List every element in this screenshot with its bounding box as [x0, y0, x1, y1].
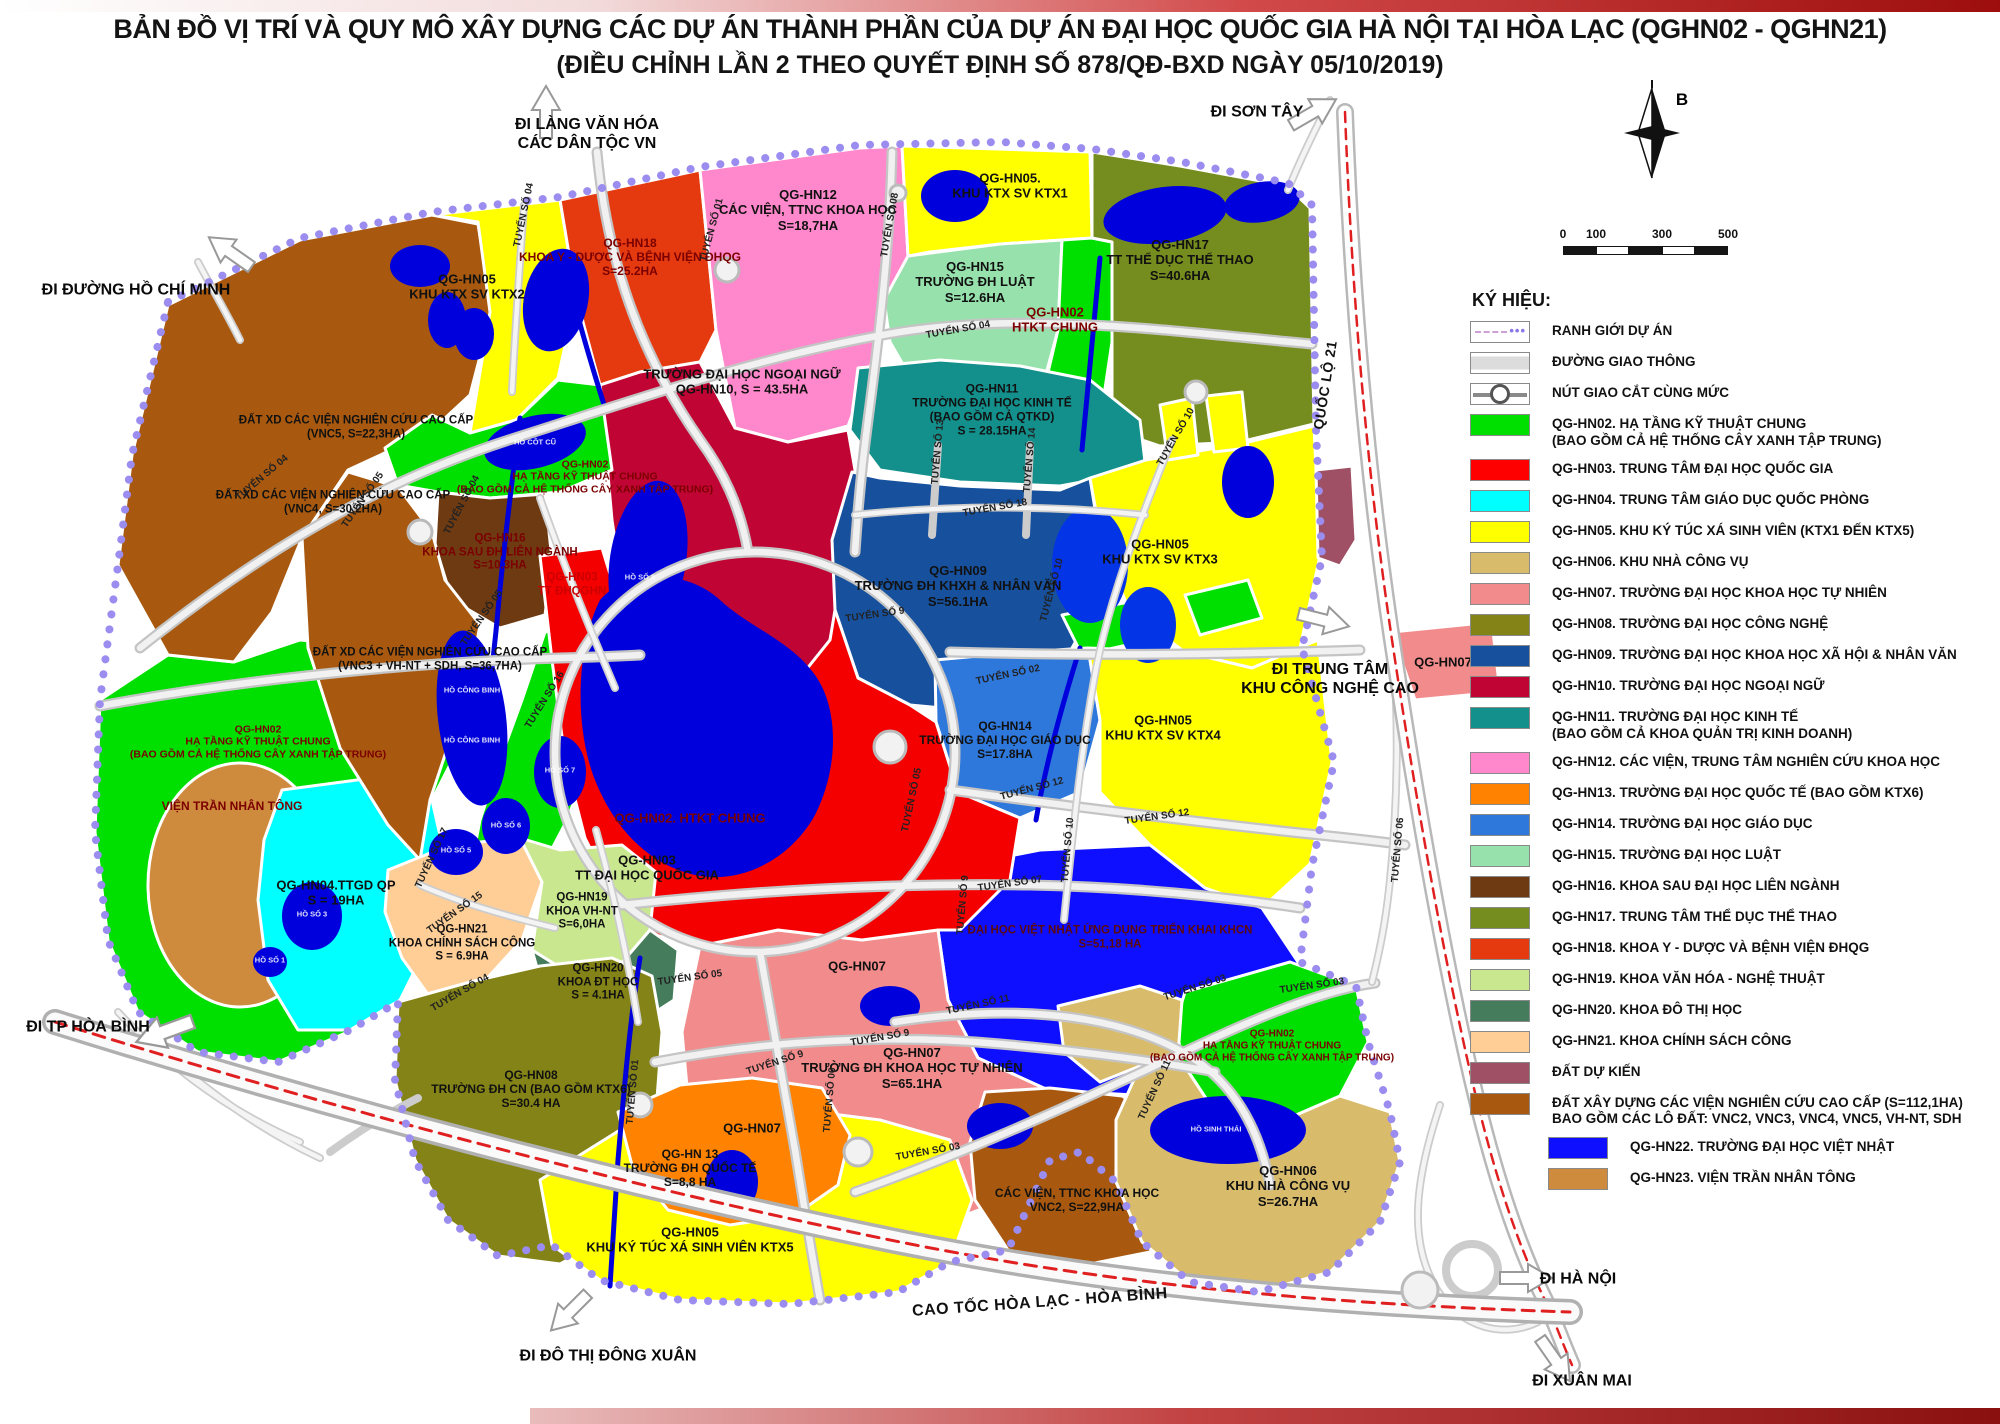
legend-item-label: QG-HN20. KHOA ĐÔ THỊ HỌC: [1552, 1000, 1742, 1019]
scale-bar: 0100300500: [1555, 228, 1755, 262]
zone-label: QG-HN03TT ĐHQGHN: [538, 571, 606, 598]
legend-symbol: [1470, 383, 1530, 405]
zone-label: TRƯỜNG ĐẠI HỌC NGOẠI NGỮQG-HN10, S = 43.…: [643, 367, 840, 398]
lake-label: HỒ SỐ 1: [255, 956, 285, 965]
zone-label: CÁC VIỆN, TTNC KHOA HỌCVNC2, S=22,9HA: [995, 1186, 1159, 1214]
scale-segment: [1563, 246, 1596, 255]
lake-label: HỒ SỐ 7: [545, 766, 575, 775]
direction-label: ĐI ĐÔ THỊ ĐÔNG XUÂN: [520, 1346, 697, 1365]
lake-label: HỒ SỐ 5: [441, 846, 471, 855]
legend-symbol: [1470, 459, 1530, 481]
legend-title: KÝ HIỆU:: [1472, 290, 1995, 311]
lake-label: HỒ SỐ 3: [297, 910, 327, 919]
zone-label: ĐẤT XD CÁC VIỆN NGHIÊN CỨU CAO CẤP(VNC3 …: [313, 646, 547, 673]
map-canvas: QG-HN05KHU KTX SV KTX2QG-HN18KHOA Y - DƯ…: [0, 0, 2000, 1424]
legend-item-label: QG-HN21. KHOA CHÍNH SÁCH CÔNG: [1552, 1031, 1792, 1050]
legend-item: QG-HN20. KHOA ĐÔ THỊ HỌC: [1470, 1000, 1995, 1022]
zone-label: QG-HN19KHOA VH-NTS=6,0HA: [546, 892, 618, 933]
compass-letter: B: [1676, 90, 1688, 110]
scale-segment: [1596, 246, 1629, 255]
scale-tick: 300: [1652, 227, 1672, 241]
legend-symbol: [1470, 1093, 1530, 1115]
zone-label: QG-HN12CÁC VIỆN, TTNC KHOA HỌCS=18,7HA: [719, 187, 897, 233]
legend-symbol: [1470, 907, 1530, 929]
legend-item: QG-HN23. VIỆN TRẦN NHÂN TÔNG: [1548, 1168, 1995, 1190]
scale-segment: [1629, 246, 1662, 255]
legend-item: QG-HN18. KHOA Y - DƯỢC VÀ BỆNH VIỆN ĐHQG: [1470, 938, 1995, 960]
legend-item: QG-HN07. TRƯỜNG ĐẠI HỌC KHOA HỌC TỰ NHIÊ…: [1470, 583, 1995, 605]
legend-item: QG-HN08. TRƯỜNG ĐẠI HỌC CÔNG NGHỆ: [1470, 614, 1995, 636]
legend-item: QG-HN14. TRƯỜNG ĐẠI HỌC GIÁO DỤC: [1470, 814, 1995, 836]
legend-symbol: [1470, 321, 1530, 343]
legend-item-label: QG-HN07. TRƯỜNG ĐẠI HỌC KHOA HỌC TỰ NHIÊ…: [1552, 583, 1887, 602]
legend-symbol: [1470, 845, 1530, 867]
legend-item-label: NÚT GIAO CẮT CÙNG MỨC: [1552, 383, 1729, 402]
legend-item: QG-HN13. TRƯỜNG ĐẠI HỌC QUỐC TẾ (BAO GỒM…: [1470, 783, 1995, 805]
scale-tick: 100: [1586, 227, 1606, 241]
legend-item-label: ĐẤT XÂY DỰNG CÁC VIỆN NGHIÊN CỨU CAO CẤP…: [1552, 1093, 1963, 1129]
zone-label: QG-HN08TRƯỜNG ĐH CN (BAO GỒM KTX6)S=30.4…: [431, 1068, 631, 1110]
zone-label: QG-HN05KHU KTX SV KTX2: [409, 272, 525, 303]
legend-symbol: [1470, 414, 1530, 436]
zone-label: QG-HN14TRƯỜNG ĐẠI HỌC GIÁO DỤCS=17.8HA: [919, 719, 1091, 761]
legend-symbol: [1470, 876, 1530, 898]
zone-label: QG-HN04.TTGD QPS = 19HA: [276, 878, 395, 909]
legend-item: QG-HN19. KHOA VĂN HÓA - NGHỆ THUẬT: [1470, 969, 1995, 991]
legend-item-label: QG-HN09. TRƯỜNG ĐẠI HỌC KHOA HỌC XÃ HỘI …: [1552, 645, 1957, 664]
legend-item-label: QG-HN05. KHU KÝ TÚC XÁ SINH VIÊN (KTX1 Đ…: [1552, 521, 1914, 540]
legend-symbol: [1470, 676, 1530, 698]
lake-label: HỒ CÔNG BINH: [444, 686, 500, 695]
legend-item-label: QG-HN14. TRƯỜNG ĐẠI HỌC GIÁO DỤC: [1552, 814, 1812, 833]
legend-item: QG-HN04. TRUNG TÂM GIÁO DỤC QUỐC PHÒNG: [1470, 490, 1995, 512]
legend-item-label: QG-HN03. TRUNG TÂM ĐẠI HỌC QUỐC GIA: [1552, 459, 1833, 478]
direction-label: ĐI TRUNG TÂMKHU CÔNG NGHỆ CAO: [1241, 660, 1419, 698]
zone-label: QG-HN06KHU NHÀ CÔNG VỤS=26.7HA: [1226, 1163, 1350, 1209]
zone-label: QG-HN09TRƯỜNG ĐH KHXH & NHÂN VĂNS=56.1HA: [855, 563, 1062, 609]
legend-symbol: [1470, 969, 1530, 991]
zone-label: ĐẠI HỌC VIỆT NHẬT ỨNG DỤNG TRIỂN KHAI KH…: [968, 924, 1253, 951]
legend-item: RANH GIỚI DỰ ÁN: [1470, 321, 1995, 343]
legend-item: QG-HN11. TRƯỜNG ĐẠI HỌC KINH TẾ(BAO GỒM …: [1470, 707, 1995, 743]
legend-symbol: [1548, 1168, 1608, 1190]
legend-symbol: [1470, 707, 1530, 729]
legend-item-label: ĐƯỜNG GIAO THÔNG: [1552, 352, 1695, 371]
legend: KÝ HIỆU: RANH GIỚI DỰ ÁN ĐƯỜNG GIAO THÔN…: [1470, 290, 1995, 1199]
legend-item-label: QG-HN16. KHOA SAU ĐẠI HỌC LIÊN NGÀNH: [1552, 876, 1840, 895]
legend-symbol: [1470, 752, 1530, 774]
legend-item: QG-HN10. TRƯỜNG ĐẠI HỌC NGOẠI NGỮ: [1470, 676, 1995, 698]
legend-item: QG-HN03. TRUNG TÂM ĐẠI HỌC QUỐC GIA: [1470, 459, 1995, 481]
direction-label: ĐI XUÂN MAI: [1532, 1371, 1632, 1390]
legend-symbol: [1470, 645, 1530, 667]
legend-item: QG-HN05. KHU KÝ TÚC XÁ SINH VIÊN (KTX1 Đ…: [1470, 521, 1995, 543]
legend-rows: RANH GIỚI DỰ ÁN ĐƯỜNG GIAO THÔNG NÚT GIA…: [1470, 321, 1995, 1190]
lake-label: HỒ CÔT CŨ: [514, 438, 556, 447]
legend-item: QG-HN06. KHU NHÀ CÔNG VỤ: [1470, 552, 1995, 574]
zone-label: QG-HN07: [828, 958, 886, 973]
zone-label: QG-HN02HẠ TẦNG KỸ THUẬT CHUNG(BAO GỒM CẢ…: [130, 723, 386, 760]
zone-label: QG-HN15TRƯỜNG ĐH LUẬTS=12.6HA: [915, 259, 1034, 305]
legend-item: ĐƯỜNG GIAO THÔNG: [1470, 352, 1995, 374]
direction-label: ĐI SƠN TÂY: [1211, 102, 1304, 121]
direction-label: ĐI HÀ NỘI: [1540, 1269, 1616, 1288]
legend-item: NÚT GIAO CẮT CÙNG MỨC: [1470, 383, 1995, 405]
legend-item: QG-HN21. KHOA CHÍNH SÁCH CÔNG: [1470, 1031, 1995, 1053]
scale-segment: [1695, 246, 1728, 255]
legend-item: QG-HN16. KHOA SAU ĐẠI HỌC LIÊN NGÀNH: [1470, 876, 1995, 898]
legend-item-label: QG-HN04. TRUNG TÂM GIÁO DỤC QUỐC PHÒNG: [1552, 490, 1869, 509]
legend-symbol: [1470, 583, 1530, 605]
zone-label: QG-HN21KHOA CHÍNH SÁCH CÔNGS = 6.9HA: [389, 924, 536, 965]
zone-label: QG-HN05KHU KTX SV KTX4: [1105, 713, 1221, 744]
legend-symbol: [1470, 521, 1530, 543]
legend-item-label: RANH GIỚI DỰ ÁN: [1552, 321, 1672, 340]
zone-label: QG-HN 13TRƯỜNG ĐH QUỐC TẾS=8,8 HA: [624, 1147, 757, 1189]
lake-label: HỒ SINH THÁI: [1191, 1125, 1242, 1134]
zone-label: QG-HN02HẠ TẦNG KỸ THUẬT CHUNG(BAO GỒM CẢ…: [1150, 1028, 1394, 1063]
direction-label: ĐI TP HÒA BÌNH: [26, 1017, 150, 1036]
legend-symbol: [1470, 614, 1530, 636]
scale-tick: 500: [1718, 227, 1738, 241]
zone-label: QG-HN07: [1414, 654, 1472, 669]
legend-item-label: QG-HN17. TRUNG TÂM THỂ DỤC THỂ THAO: [1552, 907, 1837, 926]
zone-label: ĐẤT XD CÁC VIỆN NGHIÊN CỨU CAO CẤP(VNC5,…: [239, 414, 473, 441]
bottom-accent-bar: [530, 1408, 2000, 1424]
zone-label: QG-HN16KHOA SAU ĐH LIÊN NGÀNHS=10.3HA: [422, 533, 577, 574]
legend-item-label: QG-HN13. TRƯỜNG ĐẠI HỌC QUỐC TẾ (BAO GỒM…: [1552, 783, 1923, 802]
legend-symbol: [1470, 1062, 1530, 1084]
direction-label: ĐI ĐƯỜNG HỒ CHÍ MINH: [42, 280, 231, 299]
zone-label: QG-HN20KHOA ĐT HỌCS = 4.1HA: [558, 963, 639, 1004]
legend-item-label: ĐẤT DỰ KIẾN: [1552, 1062, 1640, 1081]
zone-label: QG-HN05KHU KTX SV KTX3: [1102, 537, 1218, 568]
zone-label: QG-HN05KHU KÝ TÚC XÁ SINH VIÊN KTX5: [586, 1225, 793, 1256]
zone-label: QG-HN02HTKT CHUNG: [1012, 305, 1098, 336]
zone-label: QG-HN03TT ĐẠI HỌC QUỐC GIA: [575, 853, 719, 884]
legend-item-label: QG-HN22. TRƯỜNG ĐẠI HỌC VIỆT NHẬT: [1630, 1137, 1894, 1156]
lake-label: HỒ SỐ 6: [491, 821, 521, 830]
legend-item: ĐẤT XÂY DỰNG CÁC VIỆN NGHIÊN CỨU CAO CẤP…: [1470, 1093, 1995, 1129]
zone-label: QG-HN07: [723, 1120, 781, 1135]
scale-tick: 0: [1560, 227, 1567, 241]
legend-item-label: QG-HN19. KHOA VĂN HÓA - NGHỆ THUẬT: [1552, 969, 1825, 988]
zone-label: QG-HN02HẠ TẦNG KỸ THUẬT CHUNG(BAO GỒM CẢ…: [457, 458, 713, 495]
legend-item-label: QG-HN11. TRƯỜNG ĐẠI HỌC KINH TẾ(BAO GỒM …: [1552, 707, 1852, 743]
legend-symbol: [1470, 490, 1530, 512]
legend-item: QG-HN15. TRƯỜNG ĐẠI HỌC LUẬT: [1470, 845, 1995, 867]
direction-label: ĐI LÀNG VĂN HÓACÁC DÂN TỘC VN: [515, 115, 659, 153]
legend-item: QG-HN12. CÁC VIỆN, TRUNG TÂM NGHIÊN CỨU …: [1470, 752, 1995, 774]
lake-label: HỒ CÔNG BINH: [444, 736, 500, 745]
legend-item-label: QG-HN10. TRƯỜNG ĐẠI HỌC NGOẠI NGỮ: [1552, 676, 1824, 695]
legend-symbol: [1470, 1031, 1530, 1053]
legend-symbol: [1470, 552, 1530, 574]
zone-label: QG-HN02. HTKT CHUNG: [615, 810, 766, 825]
legend-item: QG-HN02. HẠ TẦNG KỸ THUẬT CHUNG(BAO GỒM …: [1470, 414, 1995, 450]
legend-symbol: [1548, 1137, 1608, 1159]
legend-item-label: QG-HN15. TRƯỜNG ĐẠI HỌC LUẬT: [1552, 845, 1781, 864]
legend-item-label: QG-HN18. KHOA Y - DƯỢC VÀ BỆNH VIỆN ĐHQG: [1552, 938, 1869, 957]
zone-label: VIỆN TRẦN NHÂN TÔNG: [162, 799, 303, 813]
compass: [1624, 80, 1680, 178]
legend-item-label: QG-HN08. TRƯỜNG ĐẠI HỌC CÔNG NGHỆ: [1552, 614, 1828, 633]
legend-symbol: [1470, 814, 1530, 836]
legend-item-label: QG-HN23. VIỆN TRẦN NHÂN TÔNG: [1630, 1168, 1856, 1187]
scale-segment: [1662, 246, 1695, 255]
legend-item: QG-HN17. TRUNG TÂM THỂ DỤC THỂ THAO: [1470, 907, 1995, 929]
legend-symbol: [1470, 783, 1530, 805]
zone-label: QG-HN05.KHU KTX SV KTX1: [952, 171, 1068, 202]
legend-item: ĐẤT DỰ KIẾN: [1470, 1062, 1995, 1084]
legend-symbol: [1470, 938, 1530, 960]
zone-label: QG-HN17TT THỂ DỤC THỂ THAOS=40.6HA: [1106, 237, 1253, 283]
legend-symbol: [1470, 352, 1530, 374]
legend-item-label: QG-HN02. HẠ TẦNG KỸ THUẬT CHUNG(BAO GỒM …: [1552, 414, 1882, 450]
legend-symbol: [1470, 1000, 1530, 1022]
legend-item-label: QG-HN12. CÁC VIỆN, TRUNG TÂM NGHIÊN CỨU …: [1552, 752, 1940, 771]
lake-label: HỒ SỐ 8: [625, 573, 655, 582]
legend-item: QG-HN22. TRƯỜNG ĐẠI HỌC VIỆT NHẬT: [1548, 1137, 1995, 1159]
legend-item-label: QG-HN06. KHU NHÀ CÔNG VỤ: [1552, 552, 1749, 571]
legend-item: QG-HN09. TRƯỜNG ĐẠI HỌC KHOA HỌC XÃ HỘI …: [1470, 645, 1995, 667]
